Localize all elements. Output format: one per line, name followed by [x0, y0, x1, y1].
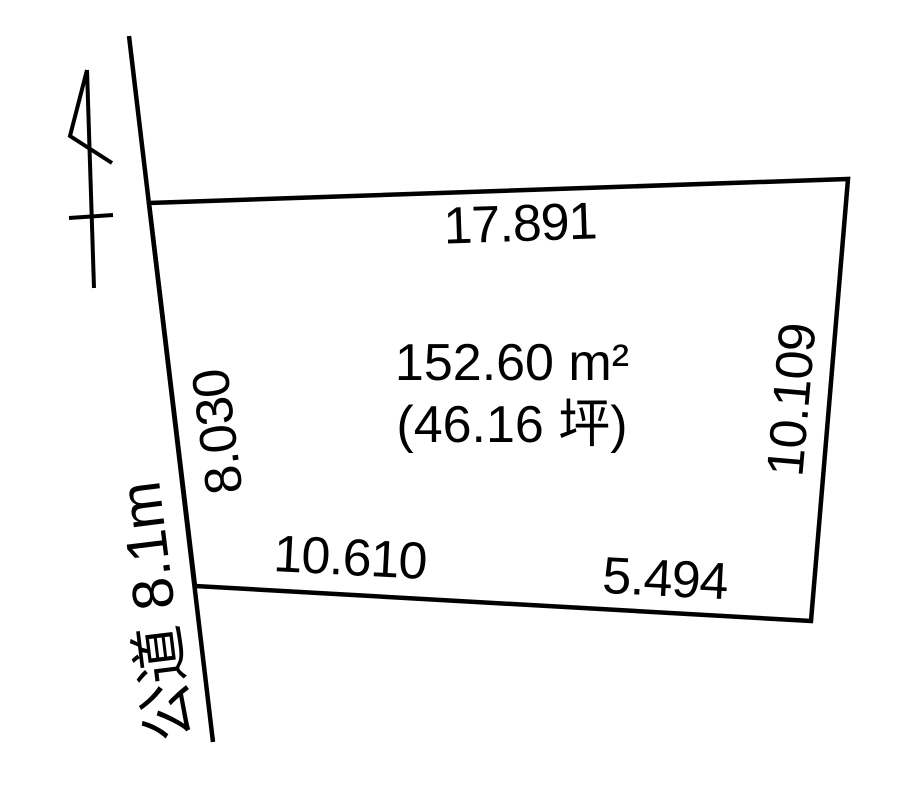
land-plot-diagram: 17.891 10.109 8.030 10.610 5.494 152.60 …: [0, 0, 913, 800]
north-arrow-flag: [70, 70, 112, 163]
north-arrow-crossbar: [69, 215, 113, 218]
area-square-meters: 152.60 m²: [395, 332, 629, 394]
area-tsubo: (46.16 坪): [395, 394, 629, 456]
north-arrow-shaft: [87, 70, 94, 288]
dimension-bottom-right: 5.494: [601, 546, 729, 612]
dimension-bottom-left: 10.610: [272, 524, 428, 592]
area-label: 152.60 m² (46.16 坪): [395, 332, 629, 456]
north-arrow-icon: [69, 70, 113, 288]
dimension-top: 17.891: [442, 191, 597, 256]
